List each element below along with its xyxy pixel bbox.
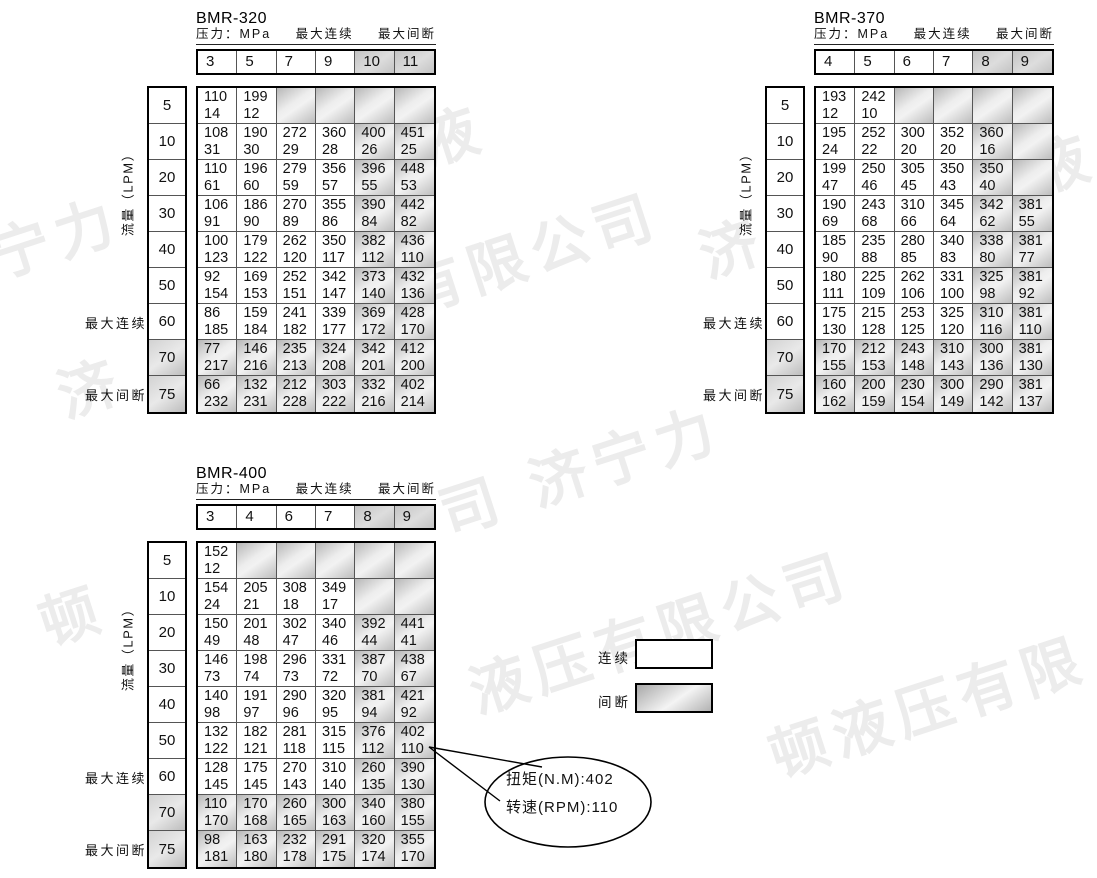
torque-value: 190 [822,197,854,214]
speed-value: 122 [243,250,275,267]
data-cell: 19660 [237,160,276,196]
motor-table-bmr-400: BMR-400压力：MPa最大连续最大间断3467895102030405060… [85,455,457,878]
speed-value: 90 [822,250,854,267]
speed-value: 178 [283,849,315,866]
pressure-column-header: 7 [934,51,973,73]
speed-value: 100 [940,286,972,303]
data-cell [395,543,434,579]
torque-value: 235 [283,341,315,358]
pressure-column-header: 4 [237,506,276,528]
speed-value: 91 [204,214,236,231]
torque-value: 350 [979,161,1011,178]
torque-value: 296 [283,652,315,669]
data-cell: 163180 [237,831,276,867]
speed-value: 12 [822,106,854,123]
torque-value: 182 [243,724,275,741]
speed-value: 177 [322,322,354,339]
data-cell [395,579,434,615]
torque-value: 191 [243,688,275,705]
torque-value: 212 [861,341,893,358]
max-intermittent-header-label: 最大间断 [996,23,1054,42]
speed-value: 231 [243,394,275,411]
data-cell: 290142 [973,376,1012,412]
table-header-line: 压力：MPa最大连续最大间断 [196,28,436,45]
speed-value: 120 [283,250,315,267]
pressure-column-header: 5 [855,51,894,73]
data-cell: 159184 [237,304,276,340]
flow-axis-label: 流量（LPM） [118,586,137,708]
speed-value: 137 [1019,394,1052,411]
data-cell: 200159 [855,376,894,412]
pressure-unit-label: 压力：MPa [814,23,889,42]
data-cell: 35220 [934,124,973,160]
data-cell: 324208 [316,340,355,376]
speed-value: 155 [822,358,854,375]
torque-value: 342 [322,269,354,286]
speed-value: 82 [401,214,434,231]
torque-value: 325 [940,305,972,322]
speed-value: 72 [322,669,354,686]
speed-value: 57 [322,178,354,195]
speed-value: 174 [361,849,393,866]
torque-value: 338 [979,233,1011,250]
data-cell: 260135 [355,759,394,795]
speed-value: 145 [204,777,236,794]
speed-value: 154 [901,394,933,411]
data-cell: 381110 [1013,304,1052,340]
torque-value: 196 [243,161,275,178]
torque-value: 108 [204,125,236,142]
torque-value: 310 [940,341,972,358]
torque-value: 260 [361,760,393,777]
torque-value: 198 [243,652,275,669]
speed-value: 110 [1019,322,1052,339]
data-cell: 382112 [355,232,394,268]
torque-value: 190 [243,125,275,142]
data-cell: 315115 [316,723,355,759]
data-cell [934,88,973,124]
speed-value: 18 [283,597,315,614]
flow-row-header: 10 [149,579,185,615]
torque-value: 150 [204,616,236,633]
data-cell: 30818 [277,579,316,615]
data-cell: 230154 [895,376,934,412]
speed-value: 136 [401,286,434,303]
data-cell: 15424 [198,579,237,615]
speed-value: 12 [204,561,236,578]
data-cell: 262106 [895,268,934,304]
speed-value: 115 [322,741,354,758]
speed-value: 121 [243,741,275,758]
flow-row-header: 20 [767,160,803,196]
torque-value: 140 [204,688,236,705]
flow-row-header: 60 [767,304,803,340]
data-cell: 38770 [355,651,394,687]
torque-value: 185 [822,233,854,250]
data-cell [277,88,316,124]
torque-value: 340 [361,796,393,813]
flow-row-header: 30 [767,196,803,232]
torque-value: 163 [243,832,275,849]
torque-value: 205 [243,580,275,597]
data-cell: 32095 [316,687,355,723]
torque-value: 421 [401,688,434,705]
flow-header-column: 51020304050607075 [147,541,187,869]
speed-value: 66 [901,214,933,231]
pressure-column-header: 9 [316,51,355,73]
data-cell [316,543,355,579]
data-cell: 19874 [237,651,276,687]
torque-value: 310 [322,760,354,777]
max-continuous-header-label: 最大连续 [296,23,354,42]
data-cell: 19947 [816,160,855,196]
data-cell: 146216 [237,340,276,376]
data-cell: 42192 [395,687,434,723]
legend-intermittent-swatch [635,683,713,713]
speed-value: 31 [204,142,236,159]
speed-value: 159 [861,394,893,411]
speed-value: 216 [243,358,275,375]
torque-value: 281 [283,724,315,741]
data-cell [895,88,934,124]
data-cell: 14098 [198,687,237,723]
motor-table-bmr-320: BMR-320压力：MPa最大连续最大间断3579101151020304050… [85,0,457,428]
data-cell: 342201 [355,340,394,376]
speed-value: 62 [979,214,1011,231]
speed-value: 180 [243,849,275,866]
speed-value: 73 [283,669,315,686]
speed-value: 29 [283,142,315,159]
speed-value: 14 [204,106,236,123]
data-cell: 35040 [973,160,1012,196]
torque-value: 128 [204,760,236,777]
callout-speed-text: 转速(RPM):110 [506,794,618,822]
pressure-column-header: 4 [816,51,855,73]
data-cell: 19912 [237,88,276,124]
pressure-header-row: 35791011 [196,49,436,75]
torque-value: 291 [322,832,354,849]
flow-row-header: 20 [149,160,185,196]
torque-value: 169 [243,269,275,286]
torque-value: 369 [361,305,393,322]
speed-value: 60 [243,178,275,195]
flow-row-header: 70 [767,340,803,376]
torque-value: 270 [283,760,315,777]
speed-value: 86 [322,214,354,231]
speed-value: 201 [361,358,393,375]
speed-value: 83 [940,250,972,267]
data-cell: 15049 [198,615,237,651]
torque-value: 382 [361,233,393,250]
speed-value: 162 [822,394,854,411]
speed-value: 165 [283,813,315,830]
watermark-text: 司 济宁力 [427,382,731,552]
speed-value: 143 [283,777,315,794]
torque-value: 110 [204,796,236,813]
data-cell: 19312 [816,88,855,124]
speed-value: 128 [861,322,893,339]
speed-value: 77 [1019,250,1052,267]
data-cell: 310143 [934,340,973,376]
flow-row-header: 60 [149,759,185,795]
torque-value: 186 [243,197,275,214]
torque-value: 360 [322,125,354,142]
data-cell: 412200 [395,340,434,376]
torque-value: 302 [283,616,315,633]
speed-value: 112 [361,741,393,758]
speed-value: 67 [401,669,434,686]
data-cell: 86185 [198,304,237,340]
data-cell: 310140 [316,759,355,795]
torque-value: 320 [361,832,393,849]
max-continuous-header-label: 最大连续 [914,23,972,42]
torque-value: 402 [401,377,434,394]
data-cell: 23588 [855,232,894,268]
data-cell: 77217 [198,340,237,376]
torque-value: 342 [361,341,393,358]
torque-value: 243 [901,341,933,358]
speed-value: 24 [822,142,854,159]
torque-value: 241 [283,305,315,322]
speed-value: 149 [940,394,972,411]
speed-value: 16 [979,142,1011,159]
torque-value: 360 [979,125,1011,142]
speed-value: 170 [204,813,236,830]
flow-row-header: 50 [767,268,803,304]
speed-value: 47 [283,633,315,650]
speed-value: 53 [401,178,434,195]
speed-value: 217 [204,358,236,375]
pressure-header-row: 346789 [196,504,436,530]
torque-value: 86 [204,305,236,322]
speed-value: 12 [243,106,275,123]
data-cell: 170155 [816,340,855,376]
torque-value: 262 [283,233,315,250]
speed-value: 10 [861,106,893,123]
data-cell: 100123 [198,232,237,268]
data-cell: 232178 [277,831,316,867]
data-cell: 29096 [277,687,316,723]
torque-value: 332 [361,377,393,394]
torque-value: 345 [940,197,972,214]
data-cell: 340160 [355,795,394,831]
speed-value: 208 [322,358,354,375]
data-cell: 38192 [1013,268,1052,304]
torque-value: 305 [901,161,933,178]
torque-value: 310 [901,197,933,214]
torque-value: 355 [322,197,354,214]
torque-value: 252 [861,125,893,142]
speed-value: 140 [322,777,354,794]
speed-value: 151 [283,286,315,303]
speed-value: 153 [243,286,275,303]
speed-value: 172 [361,322,393,339]
torque-value: 200 [861,377,893,394]
torque-value: 373 [361,269,393,286]
data-cell: 32598 [973,268,1012,304]
speed-value: 55 [1019,214,1052,231]
data-cell [355,543,394,579]
flow-row-header: 50 [149,268,185,304]
speed-value: 123 [204,250,236,267]
speed-value: 140 [361,286,393,303]
torque-value: 300 [901,125,933,142]
data-cell: 44282 [395,196,434,232]
flow-row-header: 50 [149,723,185,759]
torque-value: 290 [979,377,1011,394]
data-cell: 29673 [277,651,316,687]
data-cell: 25222 [855,124,894,160]
data-cell [1013,160,1052,196]
torque-value: 396 [361,161,393,178]
speed-value: 47 [822,178,854,195]
max-continuous-header-label: 最大连续 [296,478,354,497]
data-cell: 27229 [277,124,316,160]
data-cell: 262120 [277,232,316,268]
data-cell: 350117 [316,232,355,268]
torque-value: 350 [322,233,354,250]
data-cell: 170168 [237,795,276,831]
flow-row-header: 30 [149,196,185,232]
data-cell: 303222 [316,376,355,412]
torque-value: 212 [283,377,315,394]
data-cell: 381137 [1013,376,1052,412]
torque-value: 331 [940,269,972,286]
data-cell: 19030 [237,124,276,160]
speed-value: 106 [901,286,933,303]
speed-value: 55 [361,178,393,195]
torque-value: 110 [204,161,236,178]
torque-value: 350 [940,161,972,178]
max-intermittent-row-label: 最大间断 [85,385,147,404]
data-cell: 369172 [355,304,394,340]
speed-value: 98 [204,705,236,722]
speed-value: 97 [243,705,275,722]
flow-axis-label: 流量（LPM） [736,131,755,253]
data-cell: 243148 [895,340,934,376]
max-continuous-row-label: 最大连续 [85,313,147,332]
speed-value: 49 [204,633,236,650]
torque-value: 92 [204,269,236,286]
speed-value: 168 [243,813,275,830]
torque-value: 324 [322,341,354,358]
data-cell: 27959 [277,160,316,196]
data-cell: 30247 [277,615,316,651]
legend-continuous-swatch [635,639,713,669]
torque-value: 436 [401,233,434,250]
torque-value: 193 [822,89,854,106]
callout-torque-text: 扭矩(N.M):402 [506,766,618,794]
speed-value: 116 [979,322,1011,339]
torque-value: 352 [940,125,972,142]
flow-row-header: 40 [149,687,185,723]
torque-value: 77 [204,341,236,358]
torque-value: 252 [283,269,315,286]
data-cell: 36016 [973,124,1012,160]
table-header-line: 压力：MPa最大连续最大间断 [814,28,1054,45]
torque-value: 146 [204,652,236,669]
torque-value: 159 [243,305,275,322]
data-cell: 300149 [934,376,973,412]
pressure-column-header: 10 [355,51,394,73]
speed-value: 92 [401,705,434,722]
speed-value: 88 [861,250,893,267]
flow-row-header: 20 [149,615,185,651]
speed-value: 122 [204,741,236,758]
flow-row-header: 75 [767,376,803,412]
legend-continuous-label: 连续 [598,647,631,667]
speed-value: 96 [283,705,315,722]
speed-value: 185 [204,322,236,339]
table-header-line: 压力：MPa最大连续最大间断 [196,483,436,500]
torque-value: 448 [401,161,434,178]
speed-value: 61 [204,178,236,195]
torque-value: 310 [979,305,1011,322]
torque-value: 235 [861,233,893,250]
data-cell: 260165 [277,795,316,831]
data-cell: 10691 [198,196,237,232]
max-intermittent-row-label: 最大间断 [703,385,765,404]
torque-value: 381 [1019,377,1052,394]
flow-row-header: 70 [149,340,185,376]
torque-value: 199 [822,161,854,178]
torque-value: 300 [322,796,354,813]
speed-value: 48 [243,633,275,650]
data-cell [355,88,394,124]
data-cell: 10831 [198,124,237,160]
torque-value: 195 [822,125,854,142]
torque-value: 175 [243,760,275,777]
data-cell: 31066 [895,196,934,232]
flow-header-column: 51020304050607075 [147,86,187,414]
data-cell: 132231 [237,376,276,412]
torque-value: 106 [204,197,236,214]
speed-value: 175 [322,849,354,866]
data-cell: 44853 [395,160,434,196]
speed-value: 89 [283,214,315,231]
speed-value: 17 [322,597,354,614]
speed-value: 184 [243,322,275,339]
data-cell: 18690 [237,196,276,232]
data-cell: 270143 [277,759,316,795]
data-cell [973,88,1012,124]
speed-value: 145 [243,777,275,794]
data-cell: 44141 [395,615,434,651]
speed-value: 90 [243,214,275,231]
data-cell: 28085 [895,232,934,268]
data-cell: 40026 [355,124,394,160]
legend-intermittent-label: 间断 [598,691,631,711]
torque-value: 441 [401,616,434,633]
speed-value: 22 [861,142,893,159]
speed-value: 170 [401,322,434,339]
pressure-column-header: 3 [198,506,237,528]
speed-value: 111 [822,286,854,303]
data-cell: 381130 [1013,340,1052,376]
data-cell: 175130 [816,304,855,340]
data-cell: 14673 [198,651,237,687]
torque-value: 381 [1019,305,1052,322]
data-cell: 160162 [816,376,855,412]
data-cell: 432136 [395,268,434,304]
data-cell: 45125 [395,124,434,160]
pressure-unit-label: 压力：MPa [196,23,271,42]
torque-value: 290 [283,688,315,705]
data-cell: 376112 [355,723,394,759]
data-cell: 182121 [237,723,276,759]
pressure-column-header: 6 [895,51,934,73]
torque-value: 381 [1019,233,1052,250]
